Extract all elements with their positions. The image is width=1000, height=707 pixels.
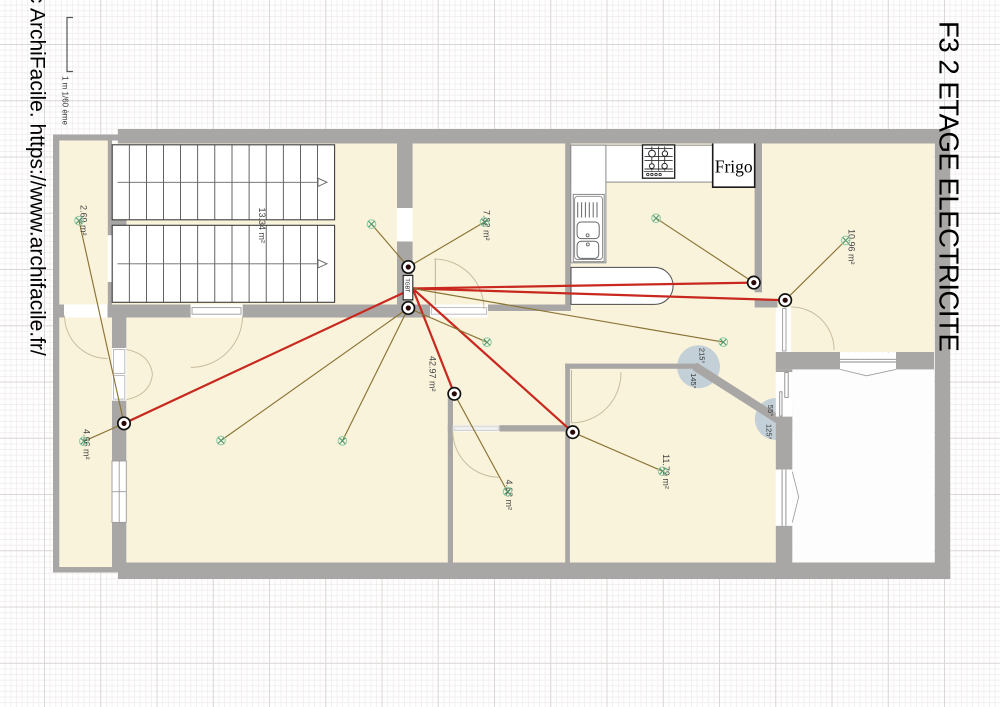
- svg-text:145°: 145°: [689, 373, 698, 389]
- svg-text:Avec ArchiFacile. https://www.: Avec ArchiFacile. https://www.archifacil…: [26, 0, 49, 356]
- svg-text:Frigo: Frigo: [715, 157, 753, 177]
- svg-text:42.97 m²: 42.97 m²: [428, 356, 438, 392]
- svg-text:10.96 m²: 10.96 m²: [847, 229, 857, 265]
- svg-text:125°: 125°: [765, 424, 774, 440]
- svg-text:1 m 1/60 ème: 1 m 1/60 ème: [61, 76, 70, 125]
- svg-text:F3 2 ETAGE ELECTRICITE: F3 2 ETAGE ELECTRICITE: [934, 21, 965, 351]
- svg-text:55°: 55°: [766, 405, 775, 416]
- svg-text:215°: 215°: [698, 348, 707, 364]
- svg-text:13.34 m²: 13.34 m²: [257, 208, 267, 244]
- svg-text:TGBT: TGBT: [404, 279, 410, 294]
